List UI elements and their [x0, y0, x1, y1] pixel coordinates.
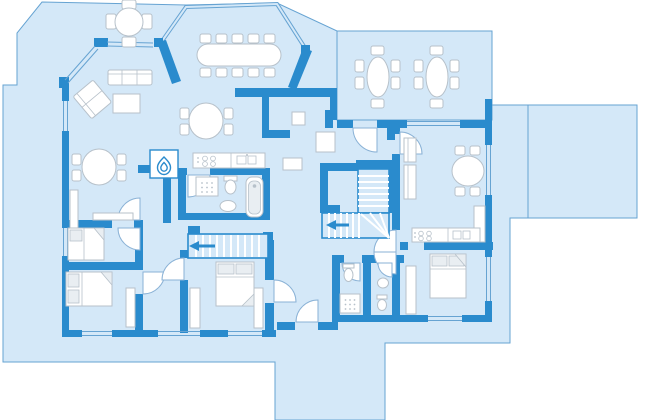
conservatory-dining: [197, 34, 281, 77]
coffee-table: [113, 94, 140, 113]
chair: [371, 99, 384, 108]
wall-anchor: [154, 38, 163, 47]
chair: [391, 77, 400, 89]
chair: [248, 68, 259, 77]
wardrobe: [126, 288, 135, 327]
oval-table: [82, 149, 116, 185]
chair: [430, 46, 443, 55]
chair: [414, 60, 423, 72]
chair: [180, 124, 189, 135]
toilet: [343, 264, 354, 282]
oval-table: [367, 57, 389, 97]
oval-table: [452, 156, 484, 186]
round-table: [115, 8, 143, 36]
washbasin: [220, 201, 236, 212]
wall-anchor: [94, 38, 108, 47]
toilet: [224, 176, 237, 194]
banquet-table: [197, 44, 281, 66]
wall-anchor: [301, 45, 310, 54]
chair: [180, 108, 189, 119]
chair: [216, 68, 227, 77]
chair: [264, 34, 275, 43]
shower: [196, 177, 218, 196]
pillow: [68, 290, 79, 303]
sofa: [108, 70, 152, 85]
toilet: [377, 295, 387, 311]
chair: [200, 68, 211, 77]
chair: [414, 77, 423, 89]
shower: [340, 294, 360, 313]
chair: [430, 99, 443, 108]
wardrobe: [406, 266, 416, 314]
bench: [283, 158, 302, 170]
floorplan-drawing: [0, 0, 650, 420]
chair: [117, 154, 126, 165]
sofa: [404, 165, 416, 199]
kitchen: [193, 153, 265, 168]
chair: [224, 124, 233, 135]
floorplan-canvas: [0, 0, 650, 420]
oval-table: [189, 103, 223, 139]
chair: [264, 68, 275, 77]
sofa: [404, 138, 416, 162]
wardrobe: [254, 288, 263, 328]
wall-niche: [316, 132, 335, 152]
oval-table: [426, 57, 448, 97]
chair: [72, 154, 81, 165]
chair: [142, 14, 152, 29]
chair: [216, 34, 227, 43]
fireplace: [150, 150, 178, 178]
chair: [200, 34, 211, 43]
pillow: [218, 264, 234, 274]
chair: [232, 34, 243, 43]
pillow: [68, 274, 79, 287]
chair: [455, 187, 465, 196]
pillow: [236, 264, 252, 274]
cabinet: [93, 213, 133, 220]
chair: [470, 187, 480, 196]
chair: [371, 46, 384, 55]
bathtub: [246, 177, 263, 217]
bedroom-west-small: [68, 228, 104, 260]
pillow: [432, 256, 447, 266]
chair: [391, 60, 400, 72]
stairs-west: [188, 234, 268, 258]
chair: [450, 60, 459, 72]
chair: [232, 68, 243, 77]
chair: [117, 170, 126, 181]
chair: [470, 146, 480, 155]
chair: [106, 14, 116, 29]
shaft-box: [292, 112, 305, 125]
chair: [224, 108, 233, 119]
chair: [355, 60, 364, 72]
chair: [72, 170, 81, 181]
chair: [450, 77, 459, 89]
chair: [355, 77, 364, 89]
chair: [122, 37, 136, 47]
chair: [248, 34, 259, 43]
chair: [455, 146, 465, 155]
washbasin: [378, 278, 389, 288]
pillow: [70, 230, 82, 241]
kitchenette: [412, 228, 480, 242]
wardrobe: [190, 288, 200, 328]
